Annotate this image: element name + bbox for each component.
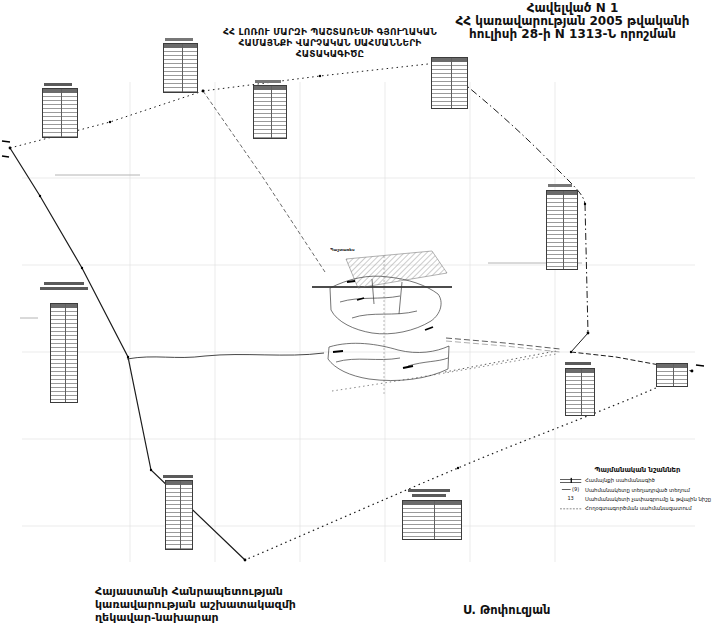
internal-lines [127, 91, 560, 391]
coordinate-table [656, 363, 688, 387]
coordinate-table [253, 85, 287, 139]
legend-item-boundary-point: (9) Սահմանակետը տեղադրված տեղում [560, 487, 715, 493]
legend-item-label: Հողօգտագործման սահմանազատում [585, 505, 692, 511]
settlement-label: Պաշտառես [330, 247, 354, 252]
map-title-line: ՀՀ ԼՈՌՈՒ ՄԱՐԶԻ ՊԱՇՏԱՌԵՍԻ ԳՅՈՒՂԱԿԱՆ [212, 27, 448, 38]
coordinate-table [402, 500, 462, 540]
signatory-title-line: կառավարության աշխատակազմի [95, 598, 355, 611]
coordinate-table [565, 368, 595, 416]
scan-streaks [20, 175, 582, 318]
map-title-line: ՀԱՄԱՅՆՔԻ ՎԱՐՉԱԿԱՆ ՍԱՀՄԱՆՆԵՐԻ [212, 38, 448, 49]
legend-item-landuse-boundary: Հողօգտագործման սահմանազատում [560, 505, 715, 511]
landuse-line-symbol [560, 505, 581, 509]
appendix-reference: Հավելված N 1 ՀՀ կառավարության 2005 թվակա… [430, 2, 715, 41]
coordinate-table [431, 57, 468, 109]
coordinate-table [42, 88, 78, 138]
map-title-line: ՀԱՏԱԿԱԳԻԾԸ [212, 49, 448, 60]
legend-item-label: Սահմանակետը տեղադրված տեղում [585, 487, 690, 493]
signatory-title-line: Հայաստանի Հանրապետության [95, 585, 355, 598]
legend-item-community-boundary: Համայնքի սահմանագիծ [560, 477, 715, 483]
signatory-title-line: ղեկավար-նախարար [95, 611, 355, 624]
signatory-title-block: Հայաստանի Հանրապետության կառավարության ա… [95, 585, 355, 624]
coordinate-table [163, 43, 198, 93]
map-title: ՀՀ ԼՈՌՈՒ ՄԱՐԶԻ ՊԱՇՏԱՌԵՍԻ ԳՅՈՒՂԱԿԱՆ ՀԱՄԱՅ… [212, 27, 448, 60]
point-number: (9) [572, 487, 579, 493]
coordinate-table [165, 480, 193, 550]
measure-number: 13 [567, 496, 573, 502]
legend-item-point-number: 13 Սահմանակետի չափագրումը և թվային նիշը [560, 496, 715, 502]
legend-item-label: Սահմանակետի չափագրումը և թվային նիշը [585, 496, 711, 502]
numbered-point-symbol: (9) [560, 487, 581, 493]
map-legend: Պայմանական նշաններ Համայնքի սահմանագիծ (… [560, 466, 715, 546]
measurement-number-symbol: 13 [560, 496, 581, 502]
boundary-line-symbol [560, 477, 581, 483]
legend-item-label: Համայնքի սահմանագիծ [585, 477, 655, 483]
signatory-name: Ս. Թոփուզյան [463, 603, 550, 617]
settlement-parcels [328, 251, 449, 396]
legend-title: Պայմանական նշաններ [560, 466, 715, 474]
scanned-map-page: Հավելված N 1 ՀՀ կառավարության 2005 թվակա… [0, 0, 715, 625]
coordinate-table [50, 303, 78, 403]
appendix-line: հուլիսի 28-ի N 1313-Ն որոշման [430, 28, 715, 41]
coordinate-table [546, 190, 578, 270]
